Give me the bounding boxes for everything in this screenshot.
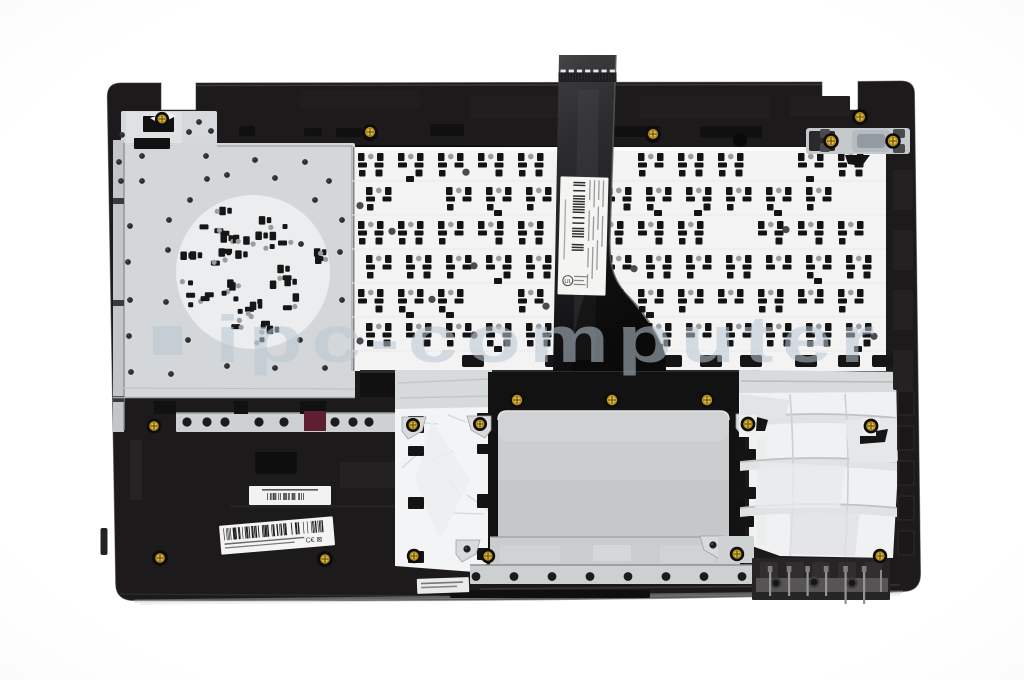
svg-text:ipc-computer: ipc-computer	[215, 302, 883, 376]
svg-text:UL: UL	[564, 279, 572, 285]
svg-text:C€ ⊠: C€ ⊠	[305, 536, 322, 544]
